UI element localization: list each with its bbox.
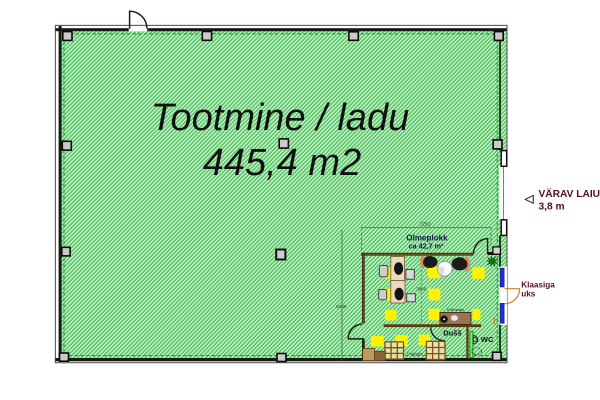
svg-text:5400: 5400: [336, 304, 347, 309]
svg-text:Pakiriiulid: Pakiriiulid: [407, 352, 422, 356]
svg-text:3,8 m: 3,8 m: [539, 202, 565, 213]
svg-text:WC: WC: [481, 335, 494, 344]
svg-text:Dušš: Dušš: [443, 328, 462, 337]
svg-text:Külmkapp: Külmkapp: [447, 308, 464, 312]
svg-text:ca 42,7 m²: ca 42,7 m²: [409, 242, 444, 251]
svg-text:7250: 7250: [419, 222, 430, 228]
svg-text:3800: 3800: [416, 287, 426, 292]
svg-text:Tootmine / ladu: Tootmine / ladu: [151, 97, 409, 139]
svg-text:Klaasiga: Klaasiga: [521, 281, 555, 290]
svg-text:VÄRAV LAIUS: VÄRAV LAIUS: [539, 187, 600, 200]
svg-text:uks: uks: [521, 289, 536, 298]
